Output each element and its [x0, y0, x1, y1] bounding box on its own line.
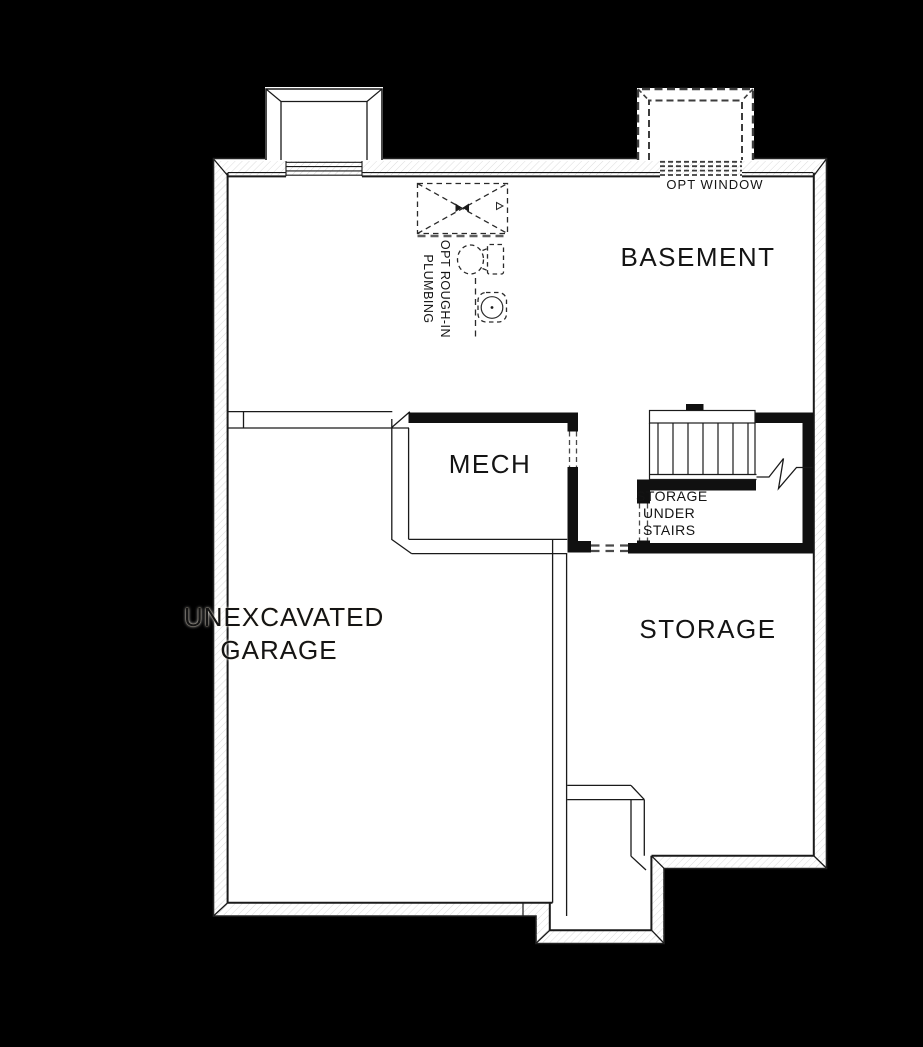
stair-bottom-wall — [628, 543, 814, 554]
floorplan-canvas: BASEMENT MECH STORAGE UNEXCAVATED GARAGE… — [0, 0, 923, 1047]
mech-wall-foot — [568, 541, 592, 553]
sus-door-stub-top — [637, 491, 650, 504]
floorplan-drawing — [0, 0, 923, 1047]
window-well-right — [637, 88, 754, 160]
floor-outline — [214, 87, 827, 944]
mech-right-wall — [568, 467, 579, 541]
under-stair-wall — [637, 480, 756, 491]
stair-right-wall — [803, 413, 814, 554]
mech-right-wall-stub — [568, 413, 579, 432]
window-well-left — [265, 87, 383, 160]
mech-top-wall — [409, 413, 579, 424]
stair-landing — [650, 411, 756, 424]
